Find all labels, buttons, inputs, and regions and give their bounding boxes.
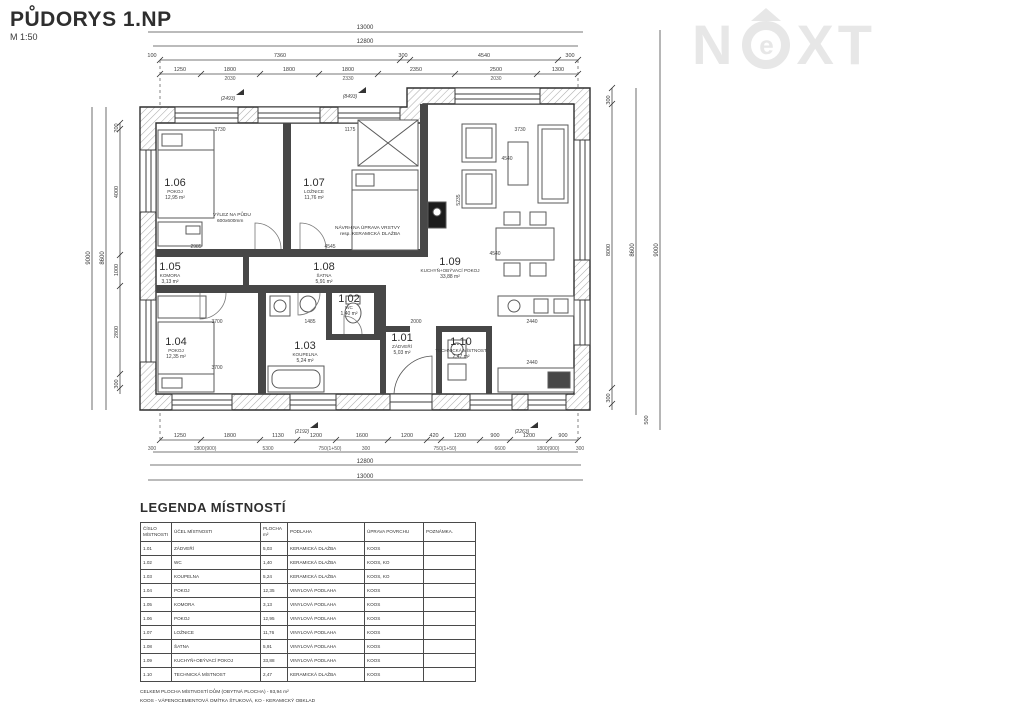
legend-row: 1.04 POKOJ 12,35 VINYLOVÁ PODLAHA KOOS xyxy=(141,584,476,598)
svg-text:ŠATNA: ŠATNA xyxy=(317,272,333,278)
svg-text:12800: 12800 xyxy=(357,459,374,465)
cell-surface: KOOS xyxy=(365,640,424,654)
svg-text:(2263): (2263) xyxy=(515,429,530,435)
bed xyxy=(352,170,418,250)
svg-text:300: 300 xyxy=(565,53,574,59)
svg-text:5300: 5300 xyxy=(262,446,273,452)
top-dimensions: 13000 12800 100 7360 300 4540 300 1250 1… xyxy=(147,25,574,82)
cell-area: 33,88 xyxy=(261,654,288,668)
col-header-podlaha: PODLAHA xyxy=(288,523,365,542)
cell-room-name: ZÁDVEŘÍ xyxy=(172,542,261,556)
cell-floor: KERAMICKÁ DLAŽBA xyxy=(288,668,365,682)
cell-area: 1,40 xyxy=(261,556,288,570)
svg-text:2330: 2330 xyxy=(342,76,353,82)
svg-text:WC: WC xyxy=(345,305,353,310)
tech-appliance xyxy=(448,364,466,380)
cell-surface: KOOS, KO xyxy=(365,556,424,570)
svg-text:9000: 9000 xyxy=(86,251,92,265)
room-label: 1.08ŠATNA5,91 m² xyxy=(313,261,334,285)
svg-text:12,35 m²: 12,35 m² xyxy=(166,354,186,360)
cell-floor: KERAMICKÁ DLAŽBA xyxy=(288,556,365,570)
floor-layer-note: NÁVRH NA ÚPRAVA VRSTVY xyxy=(335,224,401,231)
room-label: 1.10TECHNICKÁ MÍSTNOST2,47 m² xyxy=(435,336,487,360)
cell-note xyxy=(424,598,476,612)
drawing-sheet: PŮDORYS 1.NP M 1:50 N e XT xyxy=(0,0,1024,725)
cell-note xyxy=(424,668,476,682)
svg-text:2030: 2030 xyxy=(224,76,235,82)
col-header-ucel: ÚČEL MÍSTNOSTI xyxy=(172,523,261,542)
cell-room-number: 1.01 xyxy=(141,542,172,556)
svg-text:4000: 4000 xyxy=(114,186,120,198)
entrance-door xyxy=(390,394,432,410)
armchair xyxy=(462,170,496,208)
cell-surface: KOOS xyxy=(365,612,424,626)
svg-text:2440: 2440 xyxy=(526,360,537,366)
window xyxy=(172,394,232,410)
window xyxy=(258,107,320,123)
svg-text:300: 300 xyxy=(606,393,612,402)
cell-area: 5,24 xyxy=(261,570,288,584)
room-label: 1.09KUCHYŇ+OBÝVACÍ POKOJ33,88 m² xyxy=(420,256,479,280)
svg-text:TECHNICKÁ MÍSTNOST: TECHNICKÁ MÍSTNOST xyxy=(435,347,487,353)
cell-area: 5,91 xyxy=(261,640,288,654)
chair xyxy=(530,212,546,225)
svg-text:9000: 9000 xyxy=(654,243,660,257)
svg-text:1.06: 1.06 xyxy=(164,177,185,189)
svg-text:2030: 2030 xyxy=(490,76,501,82)
svg-text:1600: 1600 xyxy=(356,433,368,439)
svg-text:5,24 m²: 5,24 m² xyxy=(297,358,314,364)
svg-text:2350: 2350 xyxy=(410,67,422,73)
window xyxy=(290,394,336,410)
cell-area: 12,95 xyxy=(261,612,288,626)
svg-text:300: 300 xyxy=(148,446,157,452)
svg-text:1800: 1800 xyxy=(224,433,236,439)
room-legend: LEGENDA MÍSTNOSTÍ ČÍSLO MÍSTNOSTI ÚČEL M… xyxy=(140,500,470,706)
svg-text:7360: 7360 xyxy=(274,53,286,59)
cell-room-number: 1.06 xyxy=(141,612,172,626)
window xyxy=(574,140,590,260)
cell-surface: KOOS xyxy=(365,598,424,612)
svg-text:(2192): (2192) xyxy=(295,429,310,435)
svg-text:4545: 4545 xyxy=(324,244,335,250)
abbreviation-note: KOOS - VÁPENOCEMENTOVÁ OMÍTKA ŠTUKOVÁ, K… xyxy=(140,697,470,706)
svg-text:1200: 1200 xyxy=(454,433,466,439)
window xyxy=(140,150,156,212)
svg-text:200: 200 xyxy=(114,123,120,132)
cell-room-name: TECHNICKÁ MÍSTNOST xyxy=(172,668,261,682)
svg-text:13000: 13000 xyxy=(357,474,374,480)
svg-text:600x600mm: 600x600mm xyxy=(217,218,243,224)
svg-text:1130: 1130 xyxy=(272,433,284,439)
svg-text:500: 500 xyxy=(644,415,650,424)
floor-plan-drawing: 1.01ZÁDVEŘÍ5,03 m² 1.02WC1,40 m² 1.03KOU… xyxy=(0,0,1024,500)
svg-text:3730: 3730 xyxy=(514,127,525,133)
wardrobe xyxy=(358,120,418,166)
legend-row: 1.02 WC 1,40 KERAMICKÁ DLAŽBA KOOS, KO xyxy=(141,556,476,570)
svg-text:4540: 4540 xyxy=(478,53,490,59)
cell-room-number: 1.09 xyxy=(141,654,172,668)
svg-text:300: 300 xyxy=(606,95,612,104)
svg-text:8600: 8600 xyxy=(100,251,106,265)
svg-text:900: 900 xyxy=(490,433,499,439)
window xyxy=(528,394,566,410)
svg-text:1485: 1485 xyxy=(304,319,315,325)
cell-floor: KERAMICKÁ DLAŽBA xyxy=(288,542,365,556)
svg-text:KOMORA: KOMORA xyxy=(160,273,181,278)
cell-area: 12,35 xyxy=(261,584,288,598)
svg-text:KUCHYŇ+OBÝVACÍ POKOJ: KUCHYŇ+OBÝVACÍ POKOJ xyxy=(420,267,479,273)
svg-text:5,91 m²: 5,91 m² xyxy=(316,279,333,285)
legend-row: 1.07 LOŽNICE 11,76 VINYLOVÁ PODLAHA KOOS xyxy=(141,626,476,640)
svg-text:POKOJ: POKOJ xyxy=(167,189,183,194)
svg-text:3730: 3730 xyxy=(214,127,225,133)
svg-text:3700: 3700 xyxy=(211,319,222,325)
svg-text:2440: 2440 xyxy=(526,319,537,325)
cell-room-name: KUCHYŇ+OBÝVACÍ POKOJ xyxy=(172,654,261,668)
svg-text:8600: 8600 xyxy=(630,243,636,257)
svg-text:300: 300 xyxy=(398,53,407,59)
legend-title: LEGENDA MÍSTNOSTÍ xyxy=(140,500,470,515)
svg-text:900: 900 xyxy=(558,433,567,439)
room-label: 1.06POKOJ12,95 m² xyxy=(164,177,185,201)
svg-text:4540: 4540 xyxy=(501,156,512,162)
svg-text:1.07: 1.07 xyxy=(303,177,324,189)
room-label: 1.04POKOJ12,35 m² xyxy=(165,336,186,360)
cell-note xyxy=(424,584,476,598)
svg-text:1.09: 1.09 xyxy=(439,256,460,268)
cell-room-name: KOMORA xyxy=(172,598,261,612)
cell-note xyxy=(424,654,476,668)
washbasin xyxy=(300,296,316,312)
svg-text:2000: 2000 xyxy=(410,319,421,325)
svg-text:300: 300 xyxy=(114,379,120,388)
sofa xyxy=(538,125,568,203)
svg-text:100: 100 xyxy=(147,53,156,59)
svg-text:750(1+50): 750(1+50) xyxy=(434,446,457,452)
svg-text:1250: 1250 xyxy=(174,433,186,439)
cell-surface: KOOS xyxy=(365,668,424,682)
legend-row: 1.05 KOMORA 3,13 VINYLOVÁ PODLAHA KOOS xyxy=(141,598,476,612)
room-label: 1.03KOUPELNA5,24 m² xyxy=(292,340,318,364)
cell-area: 5,03 xyxy=(261,542,288,556)
svg-text:3700: 3700 xyxy=(211,365,222,371)
svg-text:1.10: 1.10 xyxy=(450,336,471,348)
svg-text:11,76 m²: 11,76 m² xyxy=(304,195,324,201)
svg-text:33,88 m²: 33,88 m² xyxy=(440,274,460,280)
cell-room-name: KOUPELNA xyxy=(172,570,261,584)
svg-text:8000: 8000 xyxy=(606,244,612,256)
svg-text:2985: 2985 xyxy=(190,244,201,250)
svg-text:2500: 2500 xyxy=(490,67,502,73)
window xyxy=(140,300,156,362)
svg-text:3,13 m²: 3,13 m² xyxy=(162,279,179,285)
legend-footnotes: CELKEM PLOCHA MÍSTNOSTÍ DŮM (OBYTNÁ PLOC… xyxy=(140,688,470,706)
window xyxy=(574,300,590,345)
svg-text:5235: 5235 xyxy=(456,194,462,205)
cell-floor: VINYLOVÁ PODLAHA xyxy=(288,654,365,668)
cell-room-number: 1.08 xyxy=(141,640,172,654)
svg-text:2,47 m²: 2,47 m² xyxy=(453,354,470,360)
svg-text:1.01: 1.01 xyxy=(391,332,412,344)
cell-room-name: LOŽNICE xyxy=(172,626,261,640)
kitchen-counter xyxy=(498,368,574,392)
cell-floor: VINYLOVÁ PODLAHA xyxy=(288,626,365,640)
cell-room-name: POKOJ xyxy=(172,584,261,598)
dining-table xyxy=(496,228,554,260)
chair xyxy=(504,212,520,225)
svg-text:4540: 4540 xyxy=(489,251,500,257)
cell-room-number: 1.07 xyxy=(141,626,172,640)
bathtub xyxy=(268,366,324,392)
attic-access-note: VÝLEZ NA PŮDU xyxy=(213,211,251,218)
svg-text:(2493): (2493) xyxy=(221,96,236,102)
cell-surface: KOOS xyxy=(365,654,424,668)
legend-row: 1.10 TECHNICKÁ MÍSTNOST 2,47 KERAMICKÁ D… xyxy=(141,668,476,682)
col-header-plocha: PLOCHA m² xyxy=(261,523,288,542)
legend-body: 1.01 ZÁDVEŘÍ 5,03 KERAMICKÁ DLAŽBA KOOS … xyxy=(141,542,476,682)
svg-text:300: 300 xyxy=(362,446,371,452)
cell-floor: VINYLOVÁ PODLAHA xyxy=(288,598,365,612)
svg-text:1200: 1200 xyxy=(310,433,322,439)
armchair xyxy=(462,124,496,162)
svg-text:13000: 13000 xyxy=(357,25,374,31)
cell-note xyxy=(424,612,476,626)
cell-surface: KOOS xyxy=(365,626,424,640)
svg-text:1800(900): 1800(900) xyxy=(537,446,560,452)
legend-row: 1.03 KOUPELNA 5,24 KERAMICKÁ DLAŽBA KOOS… xyxy=(141,570,476,584)
cell-note xyxy=(424,542,476,556)
desk xyxy=(158,222,202,246)
svg-text:LOŽNICE: LOŽNICE xyxy=(304,187,324,194)
svg-text:POKOJ: POKOJ xyxy=(168,348,184,353)
window xyxy=(175,107,238,123)
svg-text:1200: 1200 xyxy=(401,433,413,439)
chair xyxy=(504,263,520,276)
cell-area: 2,47 xyxy=(261,668,288,682)
svg-text:1000: 1000 xyxy=(114,264,120,276)
fireplace xyxy=(428,202,446,228)
col-header-uprava: ÚPRAVA POVRCHU xyxy=(365,523,424,542)
cell-room-number: 1.04 xyxy=(141,584,172,598)
col-header-cislo: ČÍSLO MÍSTNOSTI xyxy=(141,523,172,542)
svg-text:(8493): (8493) xyxy=(343,94,358,100)
coffee-table xyxy=(508,142,528,185)
chair xyxy=(530,263,546,276)
svg-text:1.04: 1.04 xyxy=(165,336,186,348)
svg-text:5,03 m²: 5,03 m² xyxy=(394,350,411,356)
svg-text:1800: 1800 xyxy=(283,67,295,73)
cell-room-name: ŠATNA xyxy=(172,640,261,654)
kitchen-counter xyxy=(498,296,574,316)
svg-text:1800: 1800 xyxy=(342,67,354,73)
cell-surface: KOOS, KO xyxy=(365,570,424,584)
total-area-note: CELKEM PLOCHA MÍSTNOSTÍ DŮM (OBYTNÁ PLOC… xyxy=(140,688,470,697)
cell-note xyxy=(424,570,476,584)
cell-area: 11,76 xyxy=(261,626,288,640)
svg-text:1.02: 1.02 xyxy=(338,293,359,305)
svg-text:1,40 m²: 1,40 m² xyxy=(341,311,358,317)
cell-floor: VINYLOVÁ PODLAHA xyxy=(288,584,365,598)
window xyxy=(470,394,512,410)
cell-room-number: 1.02 xyxy=(141,556,172,570)
svg-text:1250: 1250 xyxy=(174,67,186,73)
legend-table: ČÍSLO MÍSTNOSTI ÚČEL MÍSTNOSTI PLOCHA m²… xyxy=(140,522,476,682)
svg-text:1.05: 1.05 xyxy=(159,261,180,273)
washing-machine xyxy=(270,296,290,316)
cell-floor: KERAMICKÁ DLAŽBA xyxy=(288,570,365,584)
cell-floor: VINYLOVÁ PODLAHA xyxy=(288,640,365,654)
svg-text:420: 420 xyxy=(429,433,438,439)
legend-row: 1.01 ZÁDVEŘÍ 5,03 KERAMICKÁ DLAŽBA KOOS xyxy=(141,542,476,556)
cell-note xyxy=(424,640,476,654)
col-header-poznamka: POZNÁMKA. xyxy=(424,523,476,542)
cell-surface: KOOS xyxy=(365,584,424,598)
svg-text:750(1+50): 750(1+50) xyxy=(319,446,342,452)
room-label: 1.01ZÁDVEŘÍ5,03 m² xyxy=(391,332,412,356)
cell-room-number: 1.05 xyxy=(141,598,172,612)
svg-text:ZÁDVEŘÍ: ZÁDVEŘÍ xyxy=(392,342,413,349)
desk xyxy=(158,296,206,318)
svg-text:KOUPELNA: KOUPELNA xyxy=(292,352,318,357)
legend-row: 1.06 POKOJ 12,95 VINYLOVÁ PODLAHA KOOS xyxy=(141,612,476,626)
cell-room-number: 1.03 xyxy=(141,570,172,584)
svg-text:12800: 12800 xyxy=(357,39,374,45)
cell-area: 3,13 xyxy=(261,598,288,612)
svg-text:300: 300 xyxy=(576,446,585,452)
svg-text:1.08: 1.08 xyxy=(313,261,334,273)
svg-text:2800: 2800 xyxy=(114,326,120,338)
legend-row: 1.08 ŠATNA 5,91 VINYLOVÁ PODLAHA KOOS xyxy=(141,640,476,654)
legend-header-row: ČÍSLO MÍSTNOSTI ÚČEL MÍSTNOSTI PLOCHA m²… xyxy=(141,523,476,542)
cell-surface: KOOS xyxy=(365,542,424,556)
svg-text:1.03: 1.03 xyxy=(294,340,315,352)
svg-text:12,95 m²: 12,95 m² xyxy=(165,195,185,201)
room-label: 1.07LOŽNICE11,76 m² xyxy=(303,177,324,201)
cell-floor: VINYLOVÁ PODLAHA xyxy=(288,612,365,626)
cell-room-number: 1.10 xyxy=(141,668,172,682)
svg-text:1800(900): 1800(900) xyxy=(194,446,217,452)
cell-note xyxy=(424,626,476,640)
legend-row: 1.09 KUCHYŇ+OBÝVACÍ POKOJ 33,88 VINYLOVÁ… xyxy=(141,654,476,668)
room-label: 1.05KOMORA3,13 m² xyxy=(159,261,181,285)
svg-text:6600: 6600 xyxy=(494,446,505,452)
svg-text:1175: 1175 xyxy=(345,127,356,133)
cell-room-name: WC xyxy=(172,556,261,570)
cell-room-name: POKOJ xyxy=(172,612,261,626)
cell-note xyxy=(424,556,476,570)
svg-text:1300: 1300 xyxy=(552,67,564,73)
window xyxy=(455,88,540,104)
svg-text:1800: 1800 xyxy=(224,67,236,73)
bed xyxy=(158,130,214,218)
